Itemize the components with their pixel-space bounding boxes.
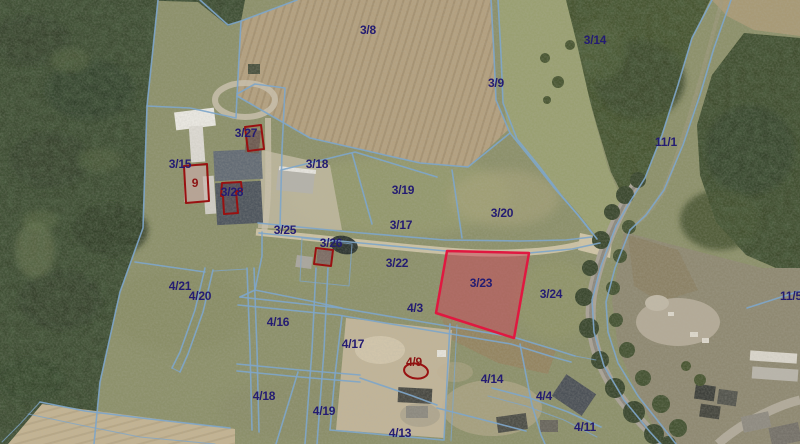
building-outline-3-27 [245, 125, 264, 151]
aerial-map-canvas[interactable]: 3/83/143/911/13/273/1593/283/183/193/203… [0, 0, 800, 444]
building-outline-9 [184, 164, 209, 203]
building-outline-3-26 [314, 248, 333, 266]
map-image [0, 0, 800, 444]
photo-grain-overlay [0, 0, 800, 444]
